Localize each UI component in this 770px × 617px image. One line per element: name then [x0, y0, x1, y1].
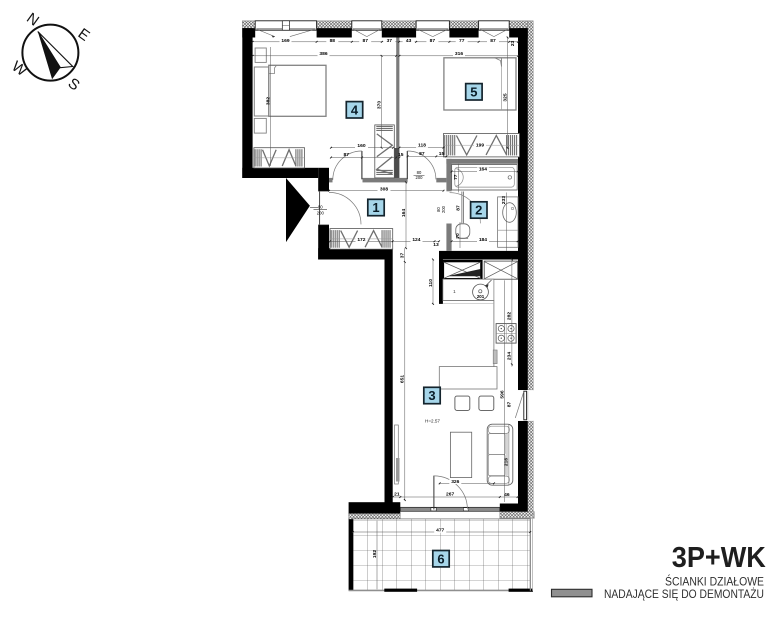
svg-text:43: 43: [406, 38, 412, 44]
svg-text:160: 160: [357, 143, 365, 149]
svg-text:H=2.57: H=2.57: [425, 419, 440, 424]
svg-text:316: 316: [455, 51, 463, 57]
svg-text:282: 282: [507, 312, 513, 320]
svg-text:5: 5: [470, 84, 477, 99]
svg-text:233: 233: [501, 196, 507, 204]
svg-text:37: 37: [399, 253, 405, 259]
svg-text:169: 169: [281, 38, 289, 44]
svg-text:124: 124: [412, 237, 420, 243]
svg-text:23: 23: [510, 40, 516, 46]
svg-text:164: 164: [401, 209, 407, 217]
svg-text:77: 77: [453, 174, 459, 180]
svg-text:3: 3: [428, 388, 435, 403]
svg-text:267: 267: [446, 491, 454, 497]
svg-text:87: 87: [456, 205, 462, 211]
svg-text:15: 15: [398, 152, 404, 158]
svg-text:192: 192: [372, 550, 378, 558]
svg-text:80: 80: [318, 205, 323, 210]
svg-text:200: 200: [441, 205, 446, 213]
svg-text:308: 308: [380, 186, 388, 192]
svg-text:118: 118: [418, 143, 426, 149]
svg-text:13: 13: [433, 242, 439, 248]
svg-text:199: 199: [476, 143, 484, 149]
svg-text:87: 87: [343, 152, 349, 158]
svg-text:87: 87: [506, 402, 512, 408]
svg-text:70: 70: [455, 233, 461, 239]
svg-text:87: 87: [362, 38, 368, 44]
svg-text:21: 21: [394, 491, 400, 497]
svg-text:46: 46: [504, 492, 510, 498]
svg-text:651: 651: [400, 375, 406, 383]
svg-text:164: 164: [479, 167, 487, 173]
svg-text:184: 184: [479, 237, 487, 243]
svg-text:596: 596: [499, 390, 505, 398]
svg-text:370: 370: [376, 101, 382, 109]
svg-text:1: 1: [453, 289, 456, 294]
svg-text:325: 325: [502, 93, 508, 101]
svg-text:87: 87: [430, 38, 436, 44]
svg-text:2: 2: [475, 203, 482, 218]
svg-text:477: 477: [436, 527, 444, 533]
svg-text:4: 4: [351, 102, 359, 117]
svg-text:386: 386: [319, 51, 327, 57]
svg-text:88: 88: [330, 38, 336, 44]
svg-text:15: 15: [439, 151, 445, 157]
svg-text:200: 200: [317, 211, 325, 216]
svg-text:6: 6: [437, 551, 444, 566]
svg-text:216: 216: [504, 458, 510, 466]
svg-text:77: 77: [459, 38, 465, 44]
svg-text:87: 87: [490, 38, 496, 44]
svg-text:NADAJĄCE SIĘ DO DEMONTAŻU: NADAJĄCE SIĘ DO DEMONTAŻU: [604, 587, 764, 601]
svg-text:3P+WK: 3P+WK: [672, 542, 766, 574]
svg-text:234: 234: [507, 352, 513, 360]
svg-text:37: 37: [387, 38, 393, 44]
svg-text:87: 87: [419, 151, 425, 157]
svg-text:201: 201: [477, 294, 485, 299]
svg-text:1: 1: [372, 200, 379, 215]
svg-text:326: 326: [451, 479, 459, 485]
svg-text:110: 110: [428, 279, 434, 287]
svg-text:172: 172: [357, 237, 365, 243]
svg-text:382: 382: [265, 97, 271, 105]
